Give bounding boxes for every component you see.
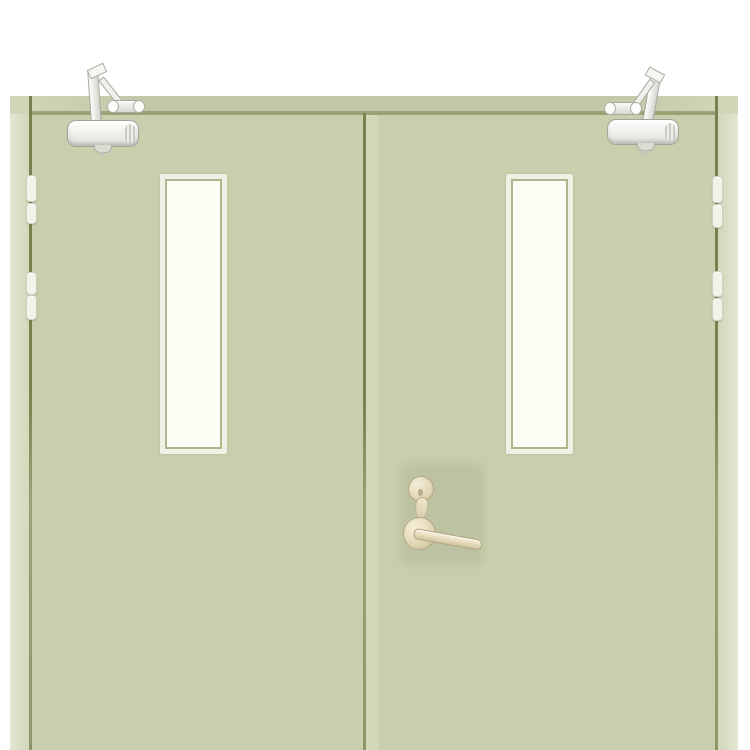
right-hinge-knuckle-3 [712,271,723,297]
left-vision-panel [160,174,227,454]
left-closer-mount-foot [108,100,144,113]
left-hinge-knuckle-2 [26,203,37,224]
left-closer-foot-cap-left [107,100,119,113]
right-closer-body [607,119,679,145]
right-vision-panel [506,174,573,454]
right-closer-pin [642,150,648,155]
right-leaf-edge-highlight [366,114,379,750]
keyhole [418,489,423,496]
left-vision-glass [165,179,222,449]
left-closer-body [67,120,139,147]
left-hinge-knuckle-4 [26,295,37,320]
right-closer-foot-cap-right [630,102,642,115]
left-hinge-knuckle-3 [26,272,37,295]
right-closer-valve-end [665,123,675,141]
right-hinge-knuckle-2 [712,204,723,228]
fire-door-product-photo [0,0,750,750]
left-closer-valve-end [125,124,135,143]
right-hinge-knuckle-1 [712,176,723,203]
right-closer-foot-cap-left [604,102,616,115]
center-meeting-gap [363,113,366,750]
left-closer-foot-cap-right [133,100,145,113]
left-closer-pin [99,152,105,157]
left-hinge-knuckle-1 [26,175,37,202]
right-hinge-knuckle-4 [712,298,723,321]
right-vision-glass [511,179,568,449]
right-closer-mount-foot [605,102,641,115]
